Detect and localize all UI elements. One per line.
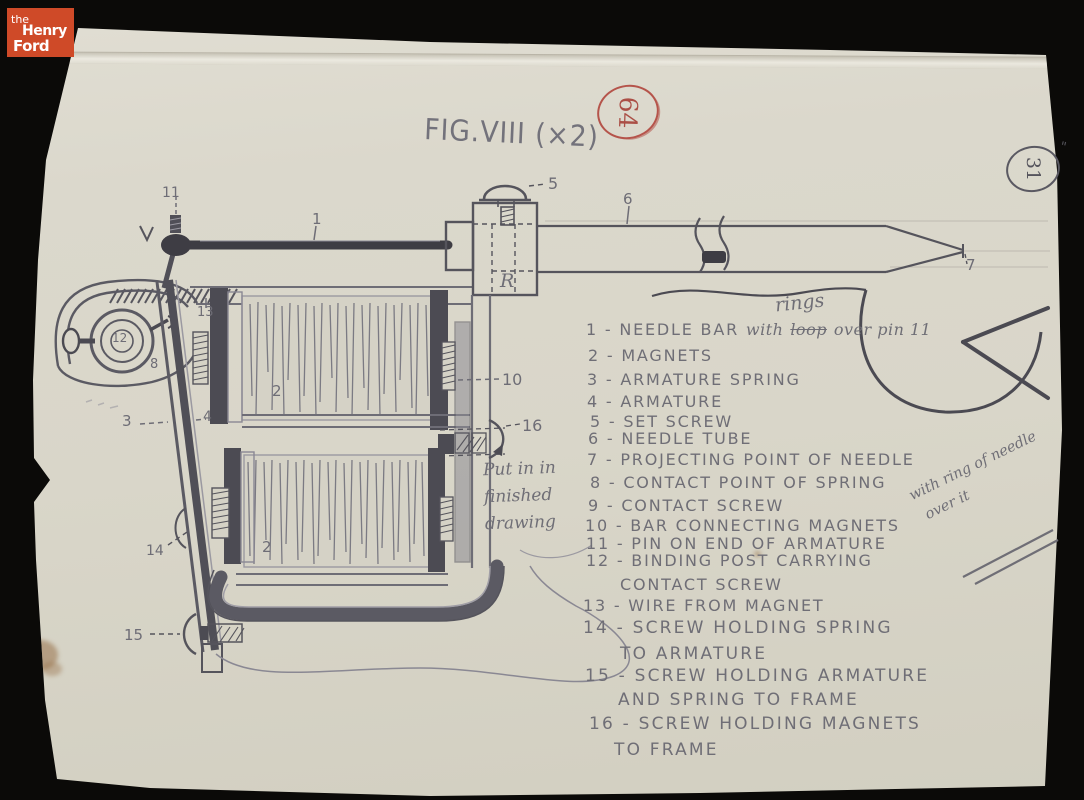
legend-line: 3 - ARMATURE SPRING [587, 372, 801, 388]
screw-16 [438, 420, 520, 458]
put-in-note: Put in in finished drawing [483, 455, 559, 538]
legend-line: 8 - CONTACT POINT OF SPRING [590, 475, 886, 491]
set-screw-block [446, 184, 545, 295]
magnet-coil-bottom [212, 448, 453, 585]
legend-line: 11 - PIN ON END OF ARMATURE [586, 536, 887, 552]
red-number: 64 [613, 96, 643, 129]
part-label-r: R [500, 272, 514, 291]
logo-text-ford: Ford [13, 37, 49, 55]
part-label-10: 10 [502, 372, 522, 388]
put-in-line-3: drawing [484, 509, 558, 539]
part-label-12: 12 [112, 332, 127, 344]
legend-line: 7 - PROJECTING POINT OF NEEDLE [587, 452, 915, 468]
part-label-11: 11 [162, 186, 180, 200]
needle-tube [537, 216, 967, 272]
pencil-dots [86, 400, 118, 408]
magnet-coil-top [193, 288, 470, 430]
part-label-2-top: 2 [272, 384, 282, 399]
put-in-line-2: finished [484, 482, 558, 512]
legend-item-1-cursive-post: over pin 11 [834, 320, 931, 339]
part-label-3: 3 [122, 414, 132, 429]
legend-line: 6 - NEEDLE TUBE [588, 431, 752, 447]
legend-line: 5 - SET SCREW [590, 414, 733, 430]
legend-line: 15 - SCREW HOLDING ARMATURE [585, 668, 929, 685]
legend-item-1-cursive-pre: with [746, 320, 784, 339]
part-label-2-bottom: 2 [262, 540, 272, 555]
part-label-4: 4 [203, 410, 212, 424]
henry-ford-logo: the Henry Ford [7, 8, 74, 57]
needle-bar [161, 234, 448, 256]
note-leader [520, 545, 592, 558]
legend-line: 14 - SCREW HOLDING SPRING [583, 620, 893, 637]
part-label-1: 1 [312, 212, 322, 227]
note-underline [963, 530, 1058, 584]
legend-line: AND SPRING TO FRAME [618, 692, 859, 709]
scanned-page: FIG.VIII (×2) 64 31 " 11 1 5 R 6 7 13 12… [0, 0, 1084, 800]
part-label-7: 7 [966, 258, 976, 273]
legend-line: 13 - WIRE FROM MAGNET [583, 598, 824, 614]
legend-line: 9 - CONTACT SCREW [588, 498, 784, 514]
pin-11 [140, 196, 181, 240]
part-label-15: 15 [124, 628, 143, 643]
part-label-8: 8 [150, 358, 158, 371]
put-in-line-1: Put in in [483, 455, 557, 485]
legend-item-1-struck-word: loop [790, 320, 827, 339]
check-mark [140, 226, 153, 240]
part-label-14: 14 [146, 544, 164, 558]
part-label-6: 6 [623, 192, 633, 207]
corner-number: 31 [1022, 157, 1044, 181]
part-label-13: 13 [197, 306, 214, 319]
legend-line: TO FRAME [614, 742, 719, 759]
legend-item-1-printed: 1 - NEEDLE BAR [586, 320, 739, 339]
part-label-5: 5 [548, 176, 558, 192]
part-label-16: 16 [522, 418, 542, 434]
legend-item-1: 1 - NEEDLE BAR with loop over pin 11 [586, 322, 931, 338]
legend-line: 2 - MAGNETS [588, 348, 713, 364]
legend-line: TO ARMATURE [620, 646, 767, 663]
screw-15 [150, 614, 244, 672]
loose-wire [216, 566, 629, 682]
legend-line: 10 - BAR CONNECTING MAGNETS [585, 518, 900, 534]
legend-line: 12 - BINDING POST CARRYING [586, 553, 873, 569]
legend-line: CONTACT SCREW [620, 577, 783, 593]
legend-line: 16 - SCREW HOLDING MAGNETS [589, 716, 921, 733]
legend-line: 4 - ARMATURE [587, 394, 723, 410]
